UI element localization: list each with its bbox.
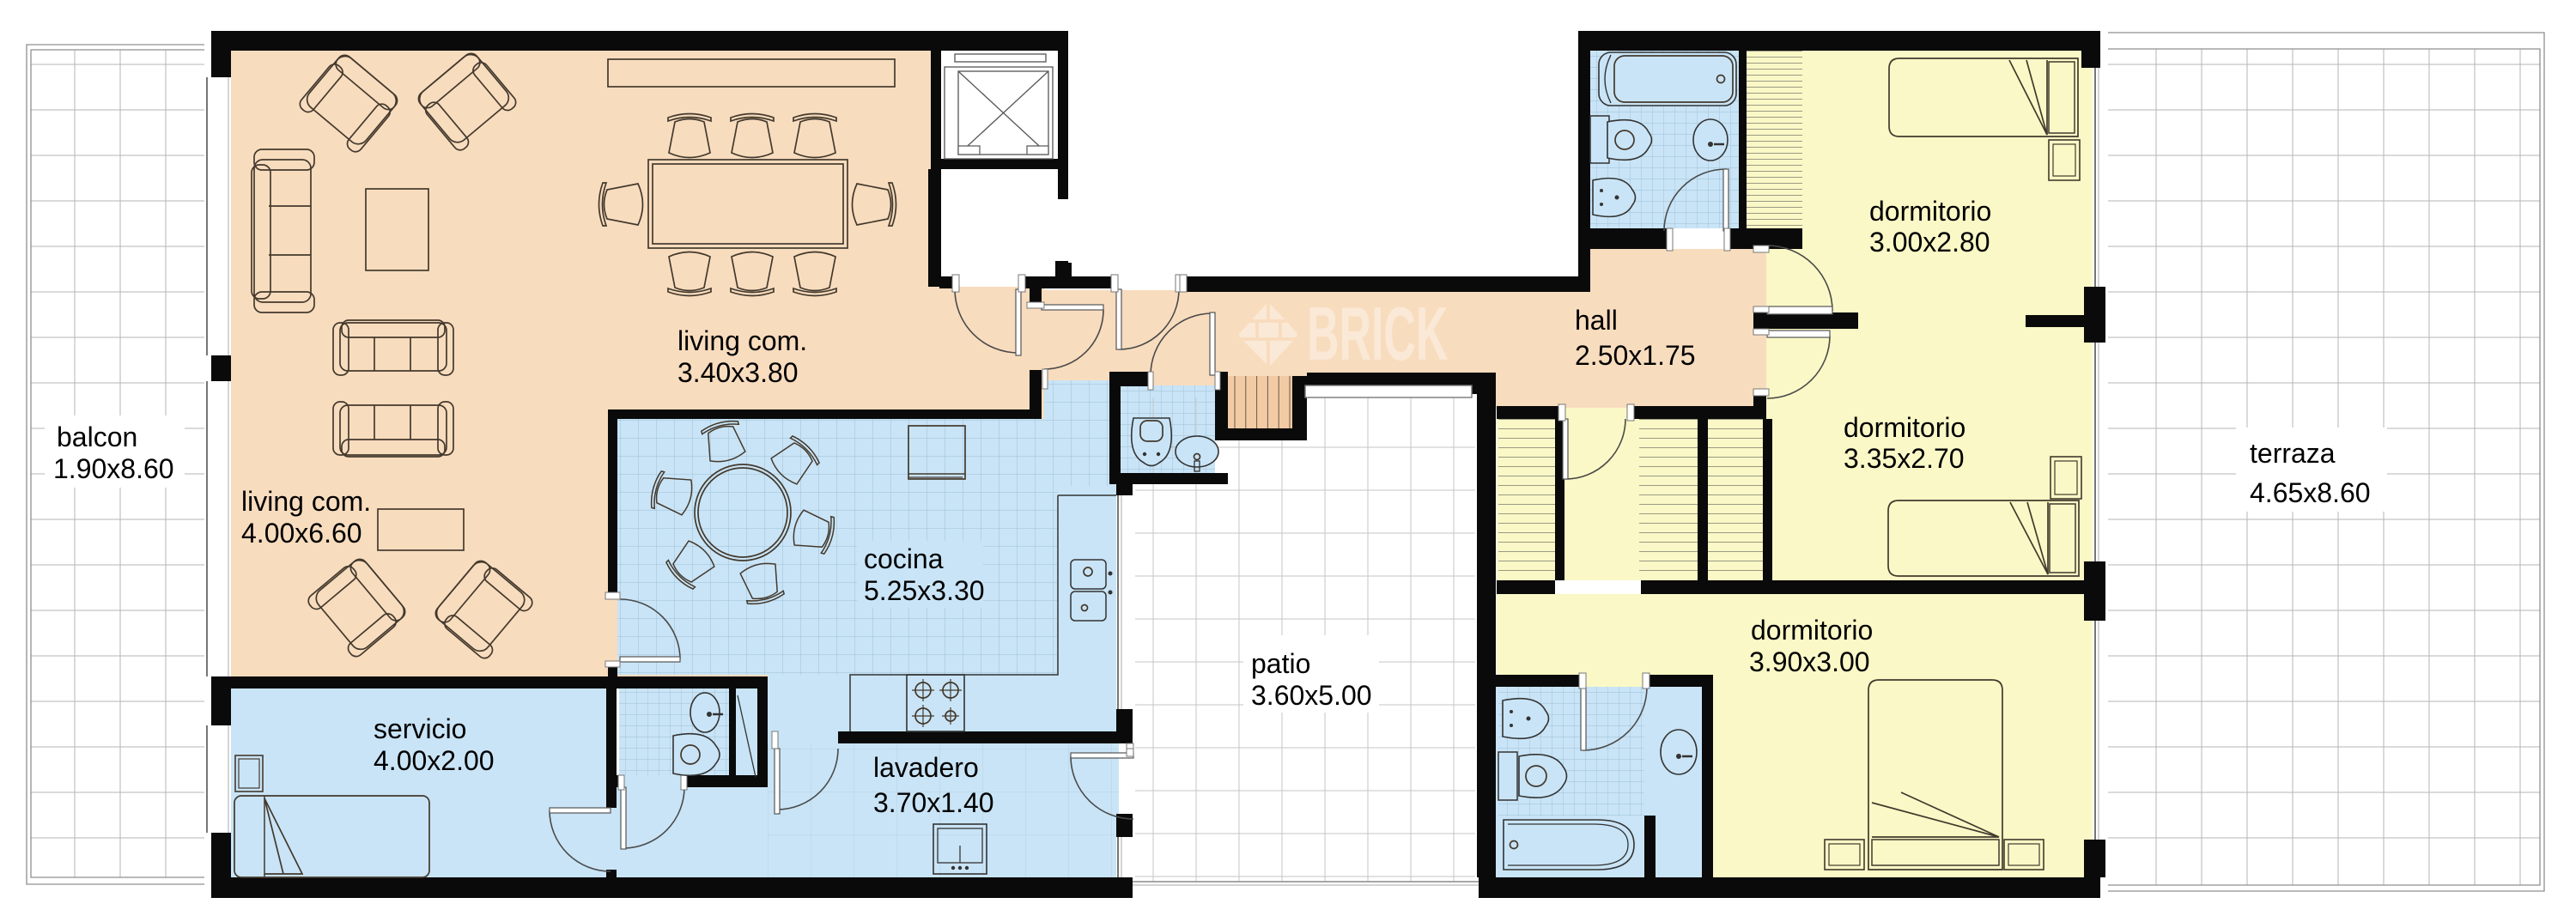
svg-text:balcon: balcon bbox=[57, 422, 137, 452]
svg-text:hall: hall bbox=[1575, 305, 1618, 336]
svg-text:4.00x2.00: 4.00x2.00 bbox=[374, 745, 495, 776]
svg-text:5.25x3.30: 5.25x3.30 bbox=[864, 575, 985, 606]
svg-text:servicio: servicio bbox=[374, 713, 466, 744]
svg-text:living com.: living com. bbox=[241, 486, 371, 517]
svg-text:3.70x1.40: 3.70x1.40 bbox=[873, 787, 994, 818]
svg-text:living com.: living com. bbox=[677, 325, 807, 356]
svg-text:cocina: cocina bbox=[864, 543, 944, 574]
svg-text:4.65x8.60: 4.65x8.60 bbox=[2250, 477, 2371, 508]
svg-text:BRICK: BRICK bbox=[1307, 293, 1448, 376]
svg-text:dormitorio: dormitorio bbox=[1869, 196, 1991, 227]
svg-text:3.35x2.70: 3.35x2.70 bbox=[1844, 443, 1965, 474]
svg-text:3.00x2.80: 3.00x2.80 bbox=[1869, 227, 1990, 258]
svg-text:dormitorio: dormitorio bbox=[1751, 615, 1873, 646]
svg-text:patio: patio bbox=[1251, 648, 1310, 679]
svg-text:3.60x5.00: 3.60x5.00 bbox=[1251, 680, 1372, 711]
svg-text:3.40x3.80: 3.40x3.80 bbox=[677, 357, 799, 388]
svg-text:dormitorio: dormitorio bbox=[1844, 412, 1965, 443]
svg-text:1.90x8.60: 1.90x8.60 bbox=[53, 453, 174, 484]
svg-text:2.50x1.75: 2.50x1.75 bbox=[1575, 340, 1696, 371]
svg-text:4.00x6.60: 4.00x6.60 bbox=[241, 518, 362, 549]
svg-text:lavadero: lavadero bbox=[873, 752, 979, 783]
svg-text:3.90x3.00: 3.90x3.00 bbox=[1749, 646, 1870, 677]
svg-text:terraza: terraza bbox=[2250, 438, 2336, 469]
